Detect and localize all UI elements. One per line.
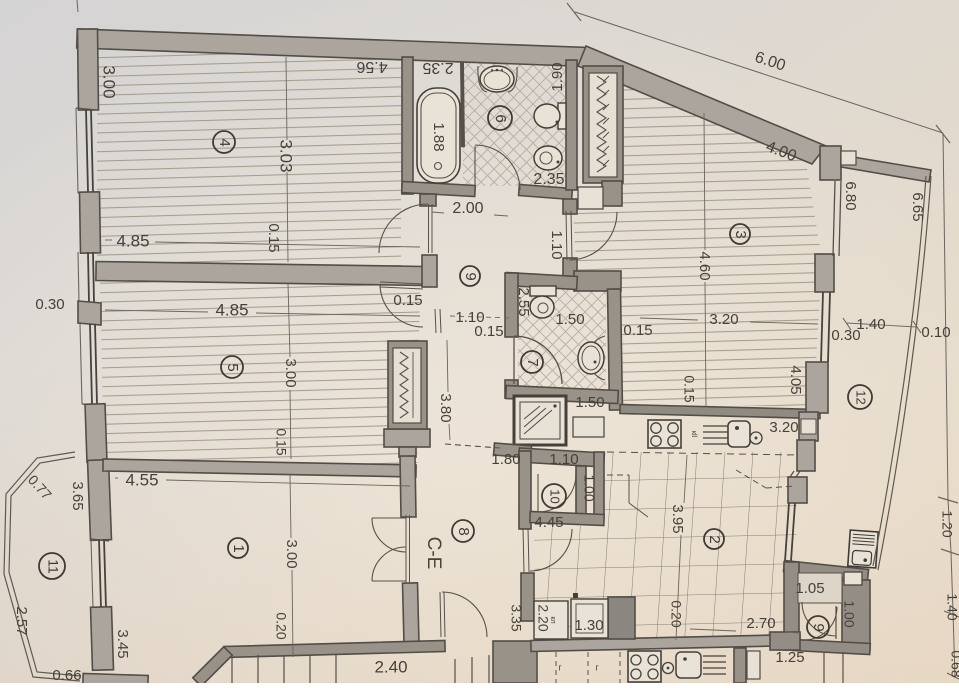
svg-text:12: 12 <box>854 390 869 404</box>
svg-text:2.35: 2.35 <box>422 59 453 76</box>
svg-text:4.55: 4.55 <box>125 470 158 489</box>
svg-text:1.20: 1.20 <box>939 510 955 537</box>
svg-text:3.03: 3.03 <box>277 139 296 172</box>
svg-text:3.00: 3.00 <box>100 65 119 98</box>
svg-text:3.35: 3.35 <box>508 604 524 631</box>
svg-text:4.60: 4.60 <box>696 251 713 280</box>
svg-text:4.85: 4.85 <box>215 300 248 319</box>
svg-text:4: 4 <box>216 138 233 146</box>
svg-text:0.66: 0.66 <box>52 667 81 683</box>
svg-text:кll: кll <box>690 431 697 438</box>
svg-text:1.00: 1.00 <box>581 474 597 501</box>
svg-text:0.30: 0.30 <box>35 296 64 313</box>
svg-text:1.10: 1.10 <box>548 230 565 259</box>
svg-text:2.20: 2.20 <box>535 604 551 631</box>
svg-text:6.65: 6.65 <box>909 192 926 221</box>
svg-text:1.88: 1.88 <box>430 122 447 151</box>
svg-text:0.20: 0.20 <box>273 612 289 639</box>
svg-text:4.45: 4.45 <box>534 514 563 531</box>
svg-text:0.68: 0.68 <box>948 650 959 677</box>
svg-text:9: 9 <box>462 272 479 280</box>
svg-text:3.20: 3.20 <box>769 419 798 436</box>
svg-text:3.65: 3.65 <box>69 481 86 510</box>
svg-text:2: 2 <box>706 535 723 543</box>
svg-text:10: 10 <box>548 489 563 503</box>
svg-text:4.56: 4.56 <box>356 58 387 75</box>
svg-text:1.10: 1.10 <box>549 451 578 468</box>
svg-text:3.95: 3.95 <box>669 504 686 533</box>
svg-text:0.20: 0.20 <box>668 600 684 627</box>
svg-text:2.00: 2.00 <box>452 200 483 217</box>
svg-text:1.00: 1.00 <box>841 600 857 627</box>
svg-text:6: 6 <box>492 114 509 122</box>
svg-text:2.40: 2.40 <box>374 657 407 676</box>
svg-text:0.15: 0.15 <box>273 428 289 455</box>
svg-text:0.15: 0.15 <box>681 375 697 402</box>
svg-text:11: 11 <box>45 559 61 574</box>
svg-text:0.15: 0.15 <box>265 223 282 252</box>
svg-text:3.80: 3.80 <box>437 393 454 422</box>
svg-text:1.80: 1.80 <box>491 451 520 468</box>
svg-text:2.57: 2.57 <box>13 606 30 635</box>
svg-text:C-E: C-E <box>423 537 444 570</box>
svg-text:1.50: 1.50 <box>555 311 584 328</box>
svg-text:1.25: 1.25 <box>775 649 804 666</box>
svg-text:5: 5 <box>224 363 241 371</box>
svg-text:4.85: 4.85 <box>116 231 149 250</box>
svg-text:2.70: 2.70 <box>746 615 775 632</box>
svg-text:1.50: 1.50 <box>575 394 604 411</box>
svg-text:0.10: 0.10 <box>921 324 950 341</box>
svg-text:1.90: 1.90 <box>549 62 566 91</box>
svg-text:8: 8 <box>455 527 472 535</box>
svg-text:9: 9 <box>810 623 827 631</box>
svg-text:1.05: 1.05 <box>795 580 824 597</box>
svg-text:0.15: 0.15 <box>474 323 503 340</box>
svg-text:1: 1 <box>230 544 247 552</box>
svg-text:2.35: 2.35 <box>533 171 564 188</box>
svg-text:3.20: 3.20 <box>709 311 738 328</box>
svg-text:3.00: 3.00 <box>283 539 300 568</box>
svg-text:3.00: 3.00 <box>282 358 299 387</box>
svg-text:0.15: 0.15 <box>623 322 652 339</box>
svg-text:1.40: 1.40 <box>944 593 959 620</box>
svg-text:0.30: 0.30 <box>831 327 860 344</box>
svg-text:4.05: 4.05 <box>787 365 804 394</box>
svg-text:1.40: 1.40 <box>856 316 885 333</box>
svg-text:1.30: 1.30 <box>574 617 603 634</box>
svg-text:6.80: 6.80 <box>842 181 859 210</box>
svg-text:3.45: 3.45 <box>114 629 131 658</box>
svg-text:7: 7 <box>524 358 541 366</box>
svg-text:0.15: 0.15 <box>393 292 422 309</box>
svg-text:3: 3 <box>732 230 749 238</box>
svg-text:2.55: 2.55 <box>515 287 532 316</box>
